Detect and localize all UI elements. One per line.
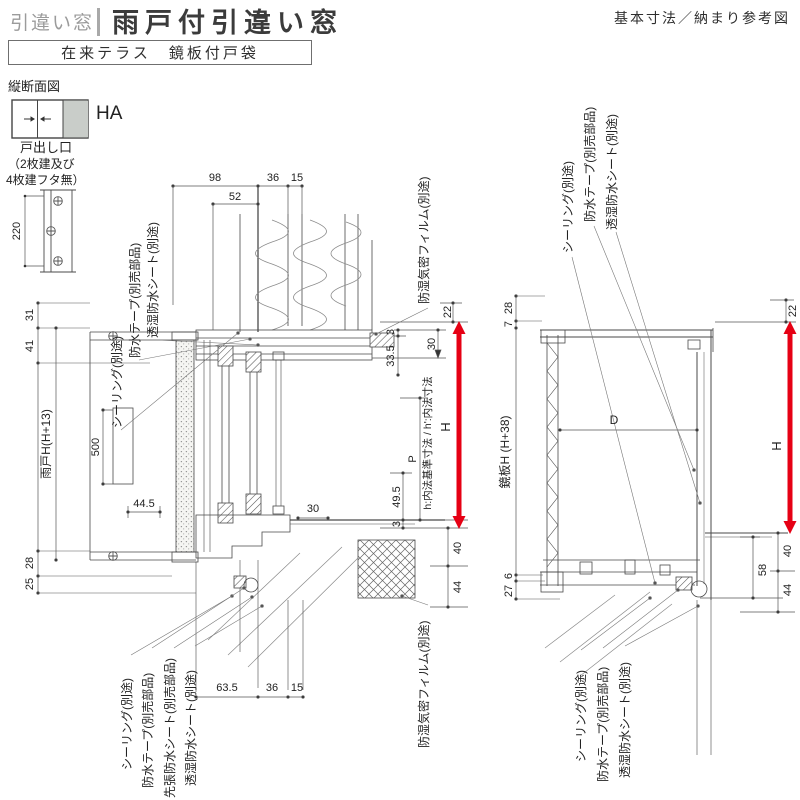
shutter-pocket-pane	[63, 101, 88, 138]
callout-breathable-sheet-top-right: 透湿防水シート(別途)	[604, 114, 619, 230]
dim-52: 52	[229, 191, 241, 203]
dim-58: 58	[757, 564, 769, 576]
dim-25: 25	[24, 578, 36, 590]
dim-49-5: 49.5	[391, 486, 403, 507]
dim-41: 41	[24, 340, 36, 352]
dim-36-bottom: 36	[266, 682, 278, 694]
dim-28: 28	[24, 557, 36, 569]
callout-waterproof-tape-bottom-right: 防水テープ(別売部品)	[595, 667, 610, 782]
type-code-label: HA	[96, 103, 123, 124]
dim-22-right: 22	[787, 305, 799, 317]
right-section-labels: 28 7 鏡板H (H+38) 6 27 D 22 H 58 40 44 シーリ…	[497, 107, 799, 782]
dim-shutter-height: 雨戸H(H+13)	[39, 409, 53, 479]
dim-63-5: 63.5	[216, 682, 237, 694]
pocket-note-line2: （2枚建及び	[8, 156, 75, 171]
dim-98: 98	[209, 172, 221, 184]
callout-breathable-sheet-bottom-left: 透湿防水シート(別途)	[183, 670, 198, 786]
callout-waterproof-tape-top-right: 防水テープ(別売部品)	[582, 107, 597, 222]
inside-height-arrow-right	[784, 321, 797, 534]
dim-3-sill: 3	[391, 521, 403, 527]
dim-30: 30	[426, 338, 438, 350]
section-view-label: 縦断面図	[8, 79, 60, 94]
pocket-note-line3: 4枚建フタ無）	[6, 172, 85, 187]
dim-27: 27	[503, 585, 515, 597]
section-drawing-canvas: 縦断面図 HA 戸出し口 （2枚建及び 4枚建フタ無）	[0, 0, 800, 800]
callout-sealing-bottom-left: シーリング(別途)	[119, 678, 134, 770]
dim-30-sill: 30	[307, 503, 319, 515]
dim-7: 7	[503, 321, 515, 327]
pocket-note-line1: 戸出し口	[20, 140, 72, 155]
dim-36-top: 36	[267, 172, 279, 184]
callout-vapor-film-bottom: 防湿気密フィルム(別途)	[416, 620, 431, 748]
dim-44-right: 44	[782, 584, 794, 596]
callout-waterproof-tape-bottom-left: 防水テープ(別売部品)	[140, 673, 155, 788]
right-section-dimension-lines	[515, 295, 796, 614]
dim-44: 44	[452, 581, 464, 593]
dim-6: 6	[503, 573, 515, 579]
callout-vapor-film-top: 防湿気密フィルム(別途)	[416, 176, 431, 304]
callout-breathable-sheet-bottom-right: 透湿防水シート(別途)	[617, 662, 632, 778]
drawing-sheet: 引違い窓 雨戸付引違い窓 在来テラス 鏡板付戸袋 基本寸法／納まり参考図	[0, 0, 800, 800]
dim-28-right: 28	[503, 302, 515, 314]
dim-33-5: 33.5	[385, 345, 397, 366]
pocket-section-thumbnail	[24, 190, 76, 272]
height-arrow-label-right: H	[769, 441, 784, 450]
dim-31: 31	[24, 309, 36, 321]
dim-p: P	[407, 455, 419, 462]
dim-40: 40	[452, 542, 464, 554]
left-section-linework	[90, 186, 445, 692]
inner-dimension-note: h:内法基準寸法 / h':内法寸法	[421, 376, 434, 509]
dim-15-bottom: 15	[291, 682, 303, 694]
callout-breathable-sheet-top-left: 透湿防水シート(別途)	[145, 222, 160, 338]
dim-40-right: 40	[782, 545, 794, 557]
callout-sealing-top-left: シーリング(別途)	[109, 336, 124, 428]
callout-sealing-bottom-right: シーリング(別途)	[573, 670, 588, 762]
dim-44-5: 44.5	[133, 498, 154, 510]
height-arrow-label-left: H	[438, 422, 453, 431]
callout-sealing-top-right: シーリング(別途)	[560, 161, 575, 253]
dim-15-top: 15	[291, 172, 303, 184]
dim-depth-d: D	[610, 413, 619, 427]
window-type-icon	[12, 100, 88, 138]
inside-height-arrow-left	[453, 321, 466, 529]
callout-waterproof-tape-top-left: 防水テープ(別売部品)	[127, 243, 142, 358]
dim-500: 500	[90, 438, 102, 456]
dim-22: 22	[442, 306, 454, 318]
dim-mirror-panel-height: 鏡板H (H+38)	[497, 415, 512, 488]
callout-pre-waterproof-sheet-bottom: 先張防水シート(別売部品)	[162, 658, 177, 798]
dim-3-head: 3	[385, 329, 397, 335]
dim-220: 220	[11, 222, 23, 240]
